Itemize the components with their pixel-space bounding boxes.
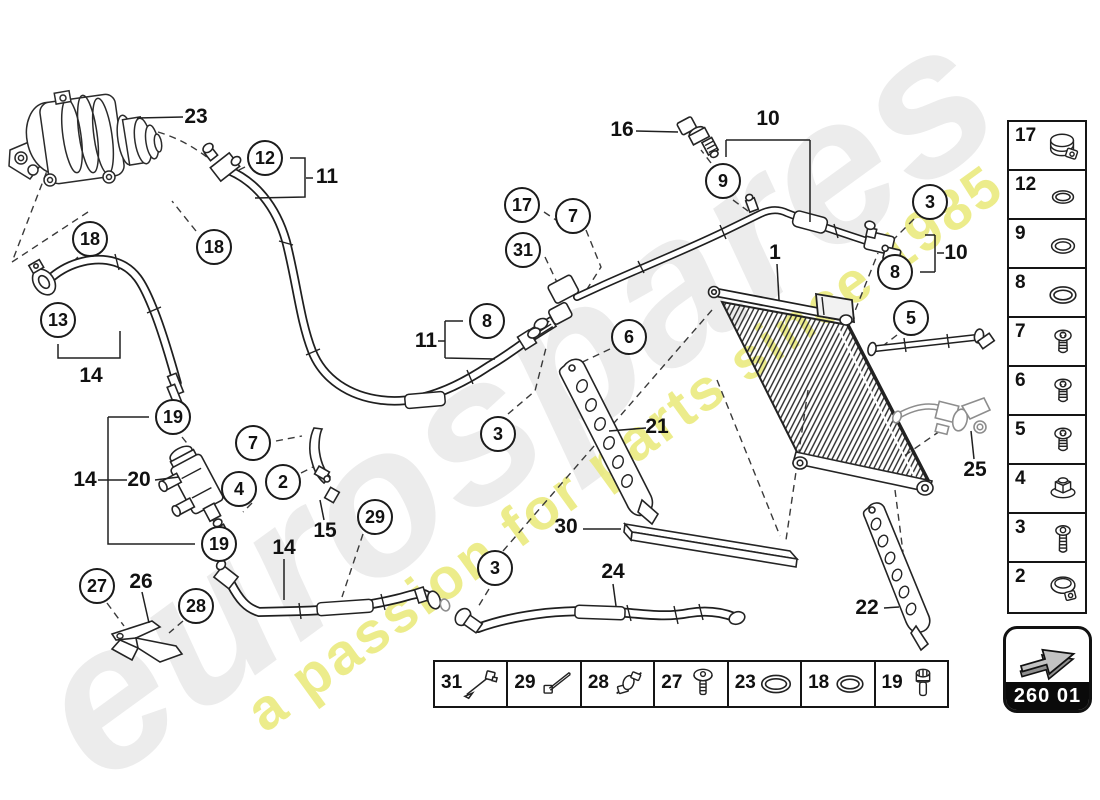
sidebar-part-2[interactable]: 2	[1009, 563, 1085, 612]
bracket-26	[112, 621, 182, 662]
part-number: 23	[735, 672, 756, 694]
seal-strip-30	[624, 524, 797, 567]
part-number: 2	[1015, 566, 1026, 588]
part-label-1[interactable]: 1	[769, 241, 781, 265]
part-label-11[interactable]: 11	[415, 329, 437, 353]
fitting-25	[891, 398, 990, 434]
tray-part-23[interactable]: 23	[729, 662, 802, 706]
part-label-20[interactable]: 20	[127, 468, 150, 492]
part-label-11[interactable]: 11	[316, 165, 338, 189]
sidebar-part-17[interactable]: 17	[1009, 122, 1085, 171]
part-label-14[interactable]: 14	[79, 364, 102, 388]
tray-part-19[interactable]: 19	[876, 662, 947, 706]
callout-circle-17[interactable]: 17	[504, 187, 540, 223]
hose-clamp-icon	[1042, 129, 1084, 167]
callout-circle-28[interactable]: 28	[178, 588, 214, 624]
screw-icon	[1042, 325, 1084, 363]
sidebar-part-12[interactable]: 12	[1009, 171, 1085, 220]
tray-part-28[interactable]: 28	[582, 662, 655, 706]
part-number: 7	[1015, 321, 1026, 343]
hose-14-bottom	[214, 559, 451, 619]
part-number: 29	[514, 672, 535, 694]
callout-circle-4[interactable]: 4	[221, 471, 257, 507]
o-ring-xl-icon	[754, 665, 798, 703]
part-label-16[interactable]: 16	[610, 118, 633, 142]
screw-icon	[1042, 423, 1084, 461]
part-number: 3	[1015, 517, 1026, 539]
page-nav-box[interactable]: 260 01	[1003, 626, 1092, 713]
screw-dome-icon	[681, 665, 725, 703]
callout-circle-18[interactable]: 18	[196, 229, 232, 265]
hose-24	[452, 604, 746, 633]
part-label-15[interactable]: 15	[313, 519, 336, 543]
o-ring-l-icon	[828, 665, 872, 703]
pipe-clip-icon	[607, 665, 651, 703]
sidebar-part-3[interactable]: 3	[1009, 514, 1085, 563]
part-label-21[interactable]: 21	[645, 415, 668, 439]
tray-part-18[interactable]: 18	[802, 662, 875, 706]
part-label-23[interactable]: 23	[184, 105, 207, 129]
part-label-25[interactable]: 25	[963, 458, 986, 482]
flange-nut-icon	[1042, 472, 1084, 510]
callout-circle-9[interactable]: 9	[705, 163, 741, 199]
part-number: 4	[1015, 468, 1026, 490]
part-label-22[interactable]: 22	[855, 596, 878, 620]
part-number: 12	[1015, 174, 1036, 196]
part-number: 18	[808, 672, 829, 694]
part-label-24[interactable]: 24	[601, 560, 624, 584]
part-number: 9	[1015, 223, 1026, 245]
callout-circle-27[interactable]: 27	[79, 568, 115, 604]
part-number: 5	[1015, 419, 1026, 441]
bracket-21	[560, 359, 658, 524]
part-number: 19	[882, 672, 903, 694]
callout-circle-6[interactable]: 6	[611, 319, 647, 355]
part-number: 17	[1015, 125, 1036, 147]
part-label-10[interactable]: 10	[944, 241, 967, 265]
callout-circle-3[interactable]: 3	[912, 184, 948, 220]
callout-circle-19[interactable]: 19	[155, 399, 191, 435]
sidebar-part-6[interactable]: 6	[1009, 367, 1085, 416]
callout-circle-3[interactable]: 3	[477, 550, 513, 586]
pipe-junction-fittings	[526, 274, 588, 340]
sidebar-part-7[interactable]: 7	[1009, 318, 1085, 367]
callout-circle-7[interactable]: 7	[555, 198, 591, 234]
part-label-14[interactable]: 14	[272, 536, 295, 560]
callout-circle-31[interactable]: 31	[505, 232, 541, 268]
sidebar-parts-table: 171298765432	[1007, 120, 1087, 614]
part-number: 27	[661, 672, 682, 694]
callout-circle-12[interactable]: 12	[247, 140, 283, 176]
o-ring-m-icon	[1042, 227, 1084, 265]
part-label-30[interactable]: 30	[554, 515, 577, 539]
pipe-5-25	[867, 328, 994, 356]
callout-circle-29[interactable]: 29	[357, 499, 393, 535]
bracket-22	[864, 503, 930, 650]
sidebar-part-4[interactable]: 4	[1009, 465, 1085, 514]
callout-circle-18[interactable]: 18	[72, 221, 108, 257]
part-number: 28	[588, 672, 609, 694]
bolt-icon	[901, 665, 945, 703]
pressure-sensor-16	[677, 112, 721, 165]
compressor	[9, 91, 163, 186]
band-clamp-icon	[1042, 570, 1084, 608]
callout-circle-2[interactable]: 2	[265, 464, 301, 500]
callout-circle-8[interactable]: 8	[877, 254, 913, 290]
tray-part-29[interactable]: 29	[508, 662, 581, 706]
part-label-26[interactable]: 26	[129, 570, 152, 594]
screw-long-icon	[1042, 521, 1084, 559]
callout-circle-8[interactable]: 8	[469, 303, 505, 339]
part-label-10[interactable]: 10	[756, 107, 779, 131]
part-label-14[interactable]: 14	[73, 468, 96, 492]
sidebar-part-9[interactable]: 9	[1009, 220, 1085, 269]
screw-icon	[1042, 374, 1084, 412]
callout-circle-3[interactable]: 3	[480, 416, 516, 452]
bracket-15	[310, 428, 340, 503]
tray-part-31[interactable]: 31	[435, 662, 508, 706]
part-number: 8	[1015, 272, 1026, 294]
part-number: 6	[1015, 370, 1026, 392]
callout-circle-19[interactable]: 19	[201, 526, 237, 562]
parts-diagram-page: eurospares a passion for parts since 198…	[0, 0, 1100, 800]
forward-arrow-icon	[1008, 631, 1089, 685]
callout-circle-7[interactable]: 7	[235, 425, 271, 461]
cable-tie-icon	[534, 665, 578, 703]
page-code: 260 01	[1006, 682, 1089, 710]
pipe-10	[577, 193, 906, 297]
callout-circle-5[interactable]: 5	[893, 300, 929, 336]
part-number: 31	[441, 672, 462, 694]
o-ring-s-icon	[1042, 178, 1084, 216]
o-ring-l-icon	[1042, 276, 1084, 314]
sidebar-part-8[interactable]: 8	[1009, 269, 1085, 318]
bottom-parts-tray: 31292827231819	[433, 660, 949, 708]
hose-11	[201, 141, 556, 408]
cable-tie-anchor-icon	[460, 665, 504, 703]
callout-circle-13[interactable]: 13	[40, 302, 76, 338]
sidebar-part-5[interactable]: 5	[1009, 416, 1085, 465]
tray-part-27[interactable]: 27	[655, 662, 728, 706]
